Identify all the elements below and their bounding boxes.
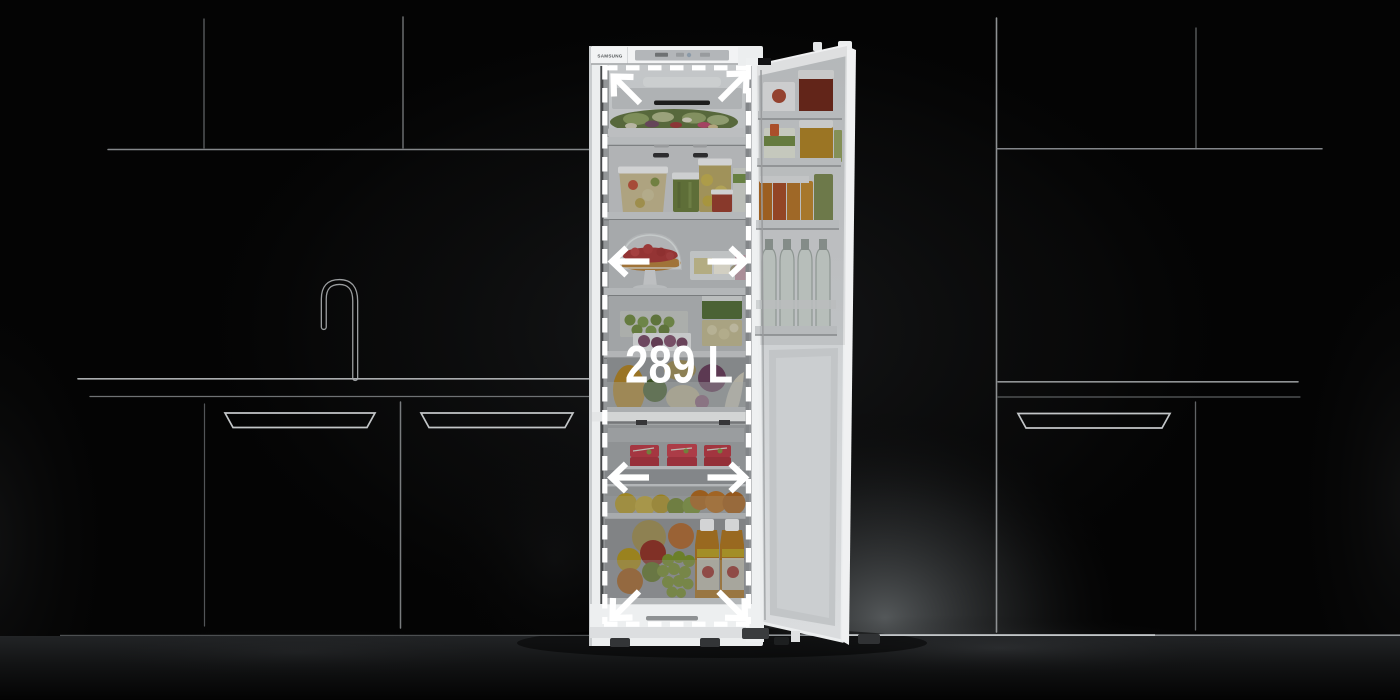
svg-text:289 L: 289 L xyxy=(625,336,733,395)
svg-text:SAMSUNG: SAMSUNG xyxy=(597,53,622,58)
